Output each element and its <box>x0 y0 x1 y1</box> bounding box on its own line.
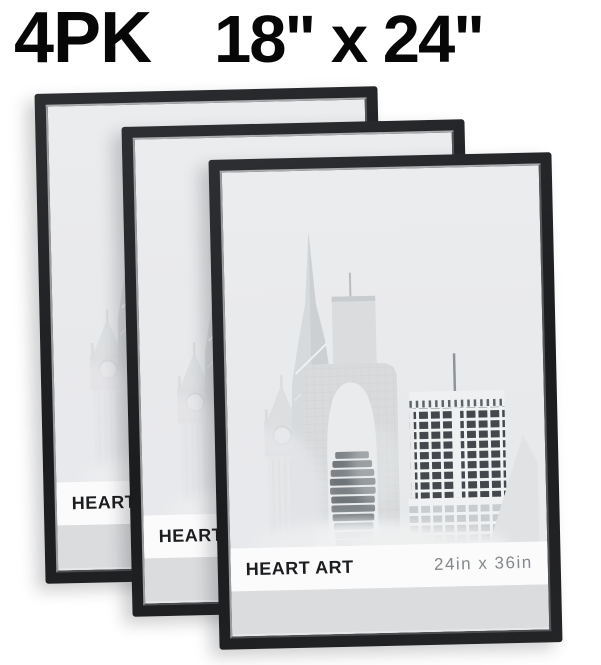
brand-label: HEART ART <box>246 556 354 579</box>
city-skyline-artwork <box>222 165 547 548</box>
front-frame: HEART ART 24in x 36in <box>208 152 562 650</box>
poster-label-band: HEART ART 24in x 36in <box>230 541 548 591</box>
frame-size-label: 18" x 24" <box>214 6 483 73</box>
header: 4PK 18" x 24" <box>0 0 601 86</box>
pack-count-label: 4PK <box>14 2 151 74</box>
product-photo: 4PK 18" x 24" <box>0 0 601 665</box>
print-size-label: 24in x 36in <box>434 553 533 575</box>
poster-bottom-strip <box>231 584 549 637</box>
front-frame-poster: HEART ART 24in x 36in <box>220 163 552 638</box>
